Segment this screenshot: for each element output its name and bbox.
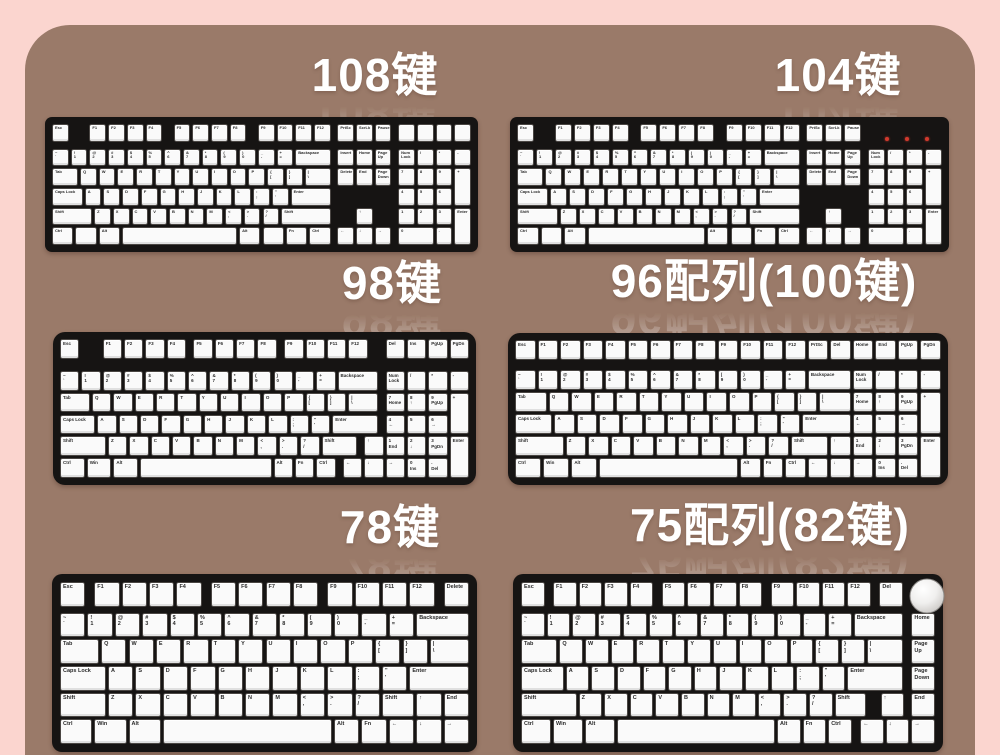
key-home: Home [825, 149, 842, 167]
key-label: V [151, 209, 166, 215]
key-label: ) 0 [275, 372, 292, 384]
key-f7: F7 [211, 124, 228, 142]
key-label: Page Down [376, 169, 391, 180]
key-label: ← [807, 228, 822, 234]
key-tab: Tab [521, 639, 557, 664]
key-caps-lock: Caps Lock [60, 415, 95, 435]
key-label: F5 [194, 340, 211, 346]
key-label: Z [561, 209, 576, 215]
key-label: I [212, 169, 227, 175]
keyboard-96-layout-100-key: EscF1F2F3F4F5F6F7F8F9F10F11F12PrtScDelHo… [508, 333, 948, 485]
key-label: B [657, 437, 676, 443]
key-label: PrtSc [807, 125, 822, 131]
key-tab: Tab [515, 392, 547, 412]
key-label: Backspace [296, 150, 329, 156]
key-label: Alt [240, 228, 259, 234]
key-label: ← [338, 228, 353, 234]
key-label: F10 [746, 125, 761, 131]
key-label: F11 [328, 340, 345, 346]
key-s: S [119, 415, 138, 435]
key-7: 7 [868, 168, 885, 186]
key-label [600, 459, 737, 460]
key-j: J [225, 415, 244, 435]
key-label: F6 [239, 583, 262, 591]
key-label: Enter [848, 667, 902, 675]
key-label: F9 [727, 125, 742, 131]
key-label: Ctrl [310, 228, 329, 234]
key-label: G [161, 189, 176, 195]
key-y: Y [199, 393, 218, 413]
key-label: O [231, 169, 246, 175]
key-3: # 3 [598, 613, 622, 638]
key-label: | \ [820, 393, 850, 405]
key-label: ! 1 [82, 372, 99, 384]
key-f9: F9 [771, 582, 795, 607]
key-b: B [656, 436, 677, 456]
key-label [732, 228, 752, 229]
key-↓: 2 ↓ [407, 436, 426, 456]
key-c: C [151, 436, 170, 456]
key-1: ! 1 [87, 613, 112, 638]
key--: + [454, 168, 471, 205]
key-label: ! 1 [539, 371, 558, 383]
key-label: > . [280, 437, 297, 449]
key-f3: F3 [604, 582, 628, 607]
key-label: E [157, 640, 180, 648]
key-label: F7 [267, 583, 290, 591]
key-del: . Del [428, 458, 447, 478]
key-1: ! 1 [81, 371, 100, 391]
key-label: F [608, 189, 623, 195]
key-label: A [555, 415, 574, 421]
key-h: H [667, 414, 688, 434]
key-backspace: Backspace [338, 371, 379, 391]
key-home: Home [853, 340, 874, 360]
key-fn: Fn [361, 719, 386, 744]
key--: _ - [258, 149, 275, 167]
key-label: Esc [61, 340, 78, 346]
key-i: I [293, 639, 318, 664]
key-g: G [218, 666, 243, 691]
key-label: ↑ [357, 209, 372, 215]
key-label: _ - [362, 614, 385, 628]
key-shift: Shift [517, 208, 558, 226]
key-pgup: PgUp [898, 340, 919, 360]
key-label: R [603, 169, 618, 175]
key-←: ← [808, 458, 829, 478]
key-label: / [408, 372, 425, 378]
key-alt: Alt [707, 227, 729, 245]
key-label: ) 0 [240, 150, 255, 161]
key--: ~ ` [515, 370, 536, 390]
key-label: 7 Home [387, 394, 404, 406]
key-label: M [207, 209, 222, 215]
key-shift: Shift [515, 436, 564, 456]
key-7: 7 [398, 168, 415, 186]
key-label: > . [747, 437, 766, 449]
key-label: PrtSc [338, 125, 353, 131]
key-f6: F6 [192, 124, 209, 142]
key-i: I [241, 393, 260, 413]
key-label: → [376, 228, 391, 234]
key--: < , [758, 693, 782, 718]
key-o: O [230, 168, 247, 186]
key-label: W [565, 169, 580, 175]
key-end: End [911, 693, 935, 718]
key-label: J [720, 667, 742, 675]
key-label: Ctrl [522, 720, 550, 728]
key-label: - [451, 372, 468, 378]
key-label: 5 [408, 416, 425, 422]
key-↓: 2 ↓ [875, 436, 896, 456]
key-label: Tab [518, 169, 542, 175]
key-enter: Enter [291, 188, 331, 206]
key-f6: F6 [687, 582, 711, 607]
key-p: P [248, 168, 265, 186]
key-m: M [674, 208, 691, 226]
key-label: PgDn [451, 340, 468, 346]
key-label: + = [829, 614, 851, 628]
key--: + [925, 168, 942, 205]
key-label: F10 [797, 583, 819, 591]
key-alt: Alt [334, 719, 359, 744]
key-u: U [713, 639, 737, 664]
key--: * [428, 371, 447, 391]
key-label: L [328, 667, 351, 675]
key-f: F [141, 188, 158, 206]
key-j: J [664, 188, 681, 206]
key-label: # 3 [125, 372, 142, 384]
key-4: $ 4 [127, 149, 144, 167]
key-label [589, 228, 704, 229]
key-label: F1 [556, 125, 571, 131]
key-prtsc: PrtSc [337, 124, 354, 142]
key-label: M [733, 694, 755, 702]
key-label: E [118, 169, 133, 175]
key-label: ↓ [831, 459, 850, 465]
key-label: I [242, 394, 259, 400]
key-label: $ 4 [171, 614, 194, 628]
key-label: T [178, 394, 195, 400]
key-r: R [602, 168, 619, 186]
key-label: Alt [335, 720, 358, 728]
key-n: N [655, 208, 672, 226]
key-label: * [437, 150, 452, 156]
key-label: R [184, 640, 207, 648]
key-f10: F10 [277, 124, 294, 142]
key-label: Caps Lock [61, 416, 94, 422]
key-8: * 8 [726, 613, 750, 638]
key-label: F6 [193, 125, 208, 131]
key-end: 1 End [853, 436, 874, 456]
key-label: F12 [784, 125, 799, 131]
key-f9: F9 [284, 339, 303, 359]
key-9: ( 9 [718, 370, 739, 390]
key-enter: Enter [409, 666, 469, 691]
key-label: Alt [114, 459, 137, 465]
key-label: _ - [296, 372, 313, 384]
key-label: 3 PgDn [429, 437, 446, 449]
key-label: A [98, 416, 115, 422]
key-lock: Num Lock [398, 149, 415, 167]
key--: + = [277, 149, 294, 167]
key-y: Y [640, 168, 657, 186]
key-label: 9 [437, 169, 452, 175]
key-label: Ctrl [786, 459, 805, 465]
key--: ? / [731, 208, 748, 226]
key-del: Del [879, 582, 903, 607]
key--: _ - [361, 613, 386, 638]
key-label: H [668, 415, 687, 421]
key-l: L [234, 188, 251, 206]
key-label: Ctrl [61, 720, 91, 728]
key-fn: Fn [286, 227, 307, 245]
key-label: * [907, 150, 922, 156]
key-blank [163, 719, 332, 744]
key--: " ' [822, 666, 846, 691]
key-9: ( 9 [220, 149, 237, 167]
key-label: W [572, 393, 591, 399]
key-end: End [356, 168, 373, 186]
key-label: C [152, 437, 169, 443]
key--: " ' [740, 188, 757, 206]
key-5: 5 [887, 188, 904, 206]
key-label: Shift [282, 209, 329, 215]
key-f1: F1 [555, 124, 572, 142]
key-label: F3 [150, 583, 173, 591]
key-label: F [162, 416, 179, 422]
key-k: K [683, 188, 700, 206]
key-fn: Fn [803, 719, 827, 744]
keyboard-104-key: EscF1F2F3F4F5F6F7F8F9F10F11F12PrtScScrLk… [510, 117, 949, 252]
indicator-led [885, 137, 889, 141]
key-del: . Del [898, 458, 919, 478]
key--: > . [783, 693, 807, 718]
key-9: ( 9 [252, 371, 271, 391]
key-label: ! 1 [537, 150, 552, 161]
key-label: ^ 6 [165, 150, 180, 161]
key-shift: Shift [52, 208, 92, 226]
key-label: T [663, 640, 685, 648]
key-label: Shift [516, 437, 563, 443]
key--: { [ [815, 639, 839, 664]
key-label: Y [662, 393, 681, 399]
key-u: U [684, 392, 705, 412]
key-label: P [285, 394, 302, 400]
key--: _ - [726, 149, 743, 167]
section-title-96-layout: 96配列(100键) 96配列(100键) [611, 258, 918, 341]
key-fn: Fn [763, 458, 784, 478]
key-label: F10 [356, 583, 379, 591]
key-2: 2 [887, 208, 904, 226]
key--: | \ [348, 393, 378, 413]
key-f: F [161, 415, 180, 435]
key-f3: F3 [593, 124, 610, 142]
key-label: F12 [786, 341, 805, 347]
key-2: @ 2 [115, 613, 140, 638]
key-label: I [740, 640, 762, 648]
key-label: H [246, 667, 269, 675]
key-label: ~ ` [518, 150, 533, 161]
key-label: D [589, 189, 604, 195]
key-label: Tab [53, 169, 77, 175]
key-label: 8 [888, 169, 903, 175]
key-label: F5 [212, 583, 235, 591]
key-l: L [327, 666, 352, 691]
key-label: F [623, 415, 642, 421]
key-f1: F1 [538, 340, 559, 360]
key-alt: Alt [99, 227, 120, 245]
key-f4: F4 [605, 340, 626, 360]
key-label: F4 [613, 125, 628, 131]
key-8: * 8 [231, 371, 250, 391]
key-c: C [163, 693, 188, 718]
key-↑: ↑ [416, 693, 441, 718]
key-c: C [611, 436, 632, 456]
key-f10: F10 [745, 124, 762, 142]
key-label: ← [344, 459, 361, 465]
key-label: Esc [61, 583, 84, 591]
key-label: B [682, 694, 704, 702]
key-n: N [678, 436, 699, 456]
key--: { [ [735, 168, 752, 186]
key-label: End [445, 694, 468, 702]
key-label: 2 [418, 209, 433, 215]
key-x: X [135, 693, 160, 718]
key-4: $ 4 [605, 370, 626, 390]
key-home: Home [911, 613, 935, 638]
key--: { [ [375, 639, 400, 664]
key-label: Alt [741, 459, 760, 465]
key-label: F2 [109, 125, 124, 131]
key-t: T [211, 639, 236, 664]
key-label: ↑ [831, 437, 850, 443]
key-label: PgDn [921, 341, 940, 347]
key-←: 4 ← [853, 414, 874, 434]
key-label: 5 [418, 189, 433, 195]
key-label: & 7 [701, 614, 723, 628]
key-label: → [387, 459, 404, 465]
key-label: 6 [437, 189, 452, 195]
key-i: I [678, 168, 695, 186]
key--: | \ [305, 168, 331, 186]
key--: { [ [774, 392, 795, 412]
key-i: I [739, 639, 763, 664]
key-tab: Tab [60, 639, 99, 664]
key-enter: Enter [920, 436, 941, 478]
key-tab: Tab [52, 168, 78, 186]
key-label: Fn [764, 459, 783, 465]
key-label: ~ ` [53, 150, 68, 161]
key-caps-lock: Caps Lock [515, 414, 552, 434]
key-label: Tab [61, 394, 89, 400]
key--: * [898, 370, 919, 390]
key-label: | \ [868, 640, 902, 654]
key-label: Home [912, 614, 934, 622]
key-label: Enter [921, 437, 940, 443]
key-9: ( 9 [688, 149, 705, 167]
key-f: F [622, 414, 643, 434]
key-label: H [695, 667, 717, 675]
key-label: Caps Lock [516, 415, 551, 421]
key-f8: F8 [293, 582, 318, 607]
key-f11: F11 [382, 582, 407, 607]
key-2: @ 2 [572, 613, 596, 638]
key-enter: Enter [332, 415, 378, 435]
key-f10: F10 [306, 339, 325, 359]
key-label: ^ 6 [225, 614, 248, 628]
key-5: 5 [417, 188, 434, 206]
key-alt: Alt [239, 227, 260, 245]
key-6: 6 [906, 188, 923, 206]
key-label: ← [809, 459, 828, 465]
key-f7: F7 [673, 340, 694, 360]
key-label: Esc [516, 341, 535, 347]
key-label: D [600, 415, 619, 421]
key-label: F10 [307, 340, 324, 346]
key-label: S [592, 667, 614, 675]
key-c: C [598, 208, 615, 226]
key-shift: Shift [60, 436, 106, 456]
key-label: F8 [696, 341, 715, 347]
key--: < , [723, 436, 744, 456]
key-label: Shift [53, 209, 91, 215]
key-label: U [221, 394, 238, 400]
key-label: ^ 6 [632, 150, 647, 161]
key-v: V [150, 208, 167, 226]
key-shift: Shift [835, 693, 866, 718]
key-label: End [912, 694, 934, 702]
key-label: # 3 [584, 371, 603, 383]
key-label: J [226, 416, 243, 422]
key-label: O [698, 169, 713, 175]
key-label: 1 [399, 209, 414, 215]
key-ctrl: Ctrl [309, 227, 330, 245]
key-label: F12 [349, 340, 366, 346]
key-label: Caps Lock [61, 667, 105, 675]
key-f8: F8 [697, 124, 714, 142]
key-label: Del [387, 340, 404, 346]
key-label: Enter [803, 415, 850, 421]
key-0: 0 [398, 227, 433, 245]
key-←: 4 ← [386, 415, 405, 435]
key-f: F [607, 188, 624, 206]
key-label: ^ 6 [189, 372, 206, 384]
key-tab: Tab [60, 393, 90, 413]
indicator-led [925, 137, 929, 141]
key-delete: Delete [806, 168, 823, 186]
key-label: Delete [807, 169, 822, 175]
key-label: F4 [631, 583, 653, 591]
key-label: Backspace [417, 614, 468, 622]
key-n: N [215, 436, 234, 456]
key-label: Shift [61, 437, 105, 443]
key-label: _ - [764, 371, 783, 383]
key-t: T [621, 168, 638, 186]
key-e: E [156, 639, 181, 664]
key-q: Q [549, 392, 570, 412]
key-up: Page Up [911, 639, 935, 664]
key-label: ~ ` [61, 614, 84, 628]
key-d: D [588, 188, 605, 206]
key-p: P [752, 392, 773, 412]
key-f7: F7 [266, 582, 291, 607]
key-label: → [854, 459, 873, 465]
key-label: Backspace [765, 150, 799, 156]
key--: > . [244, 208, 261, 226]
key-blank [617, 719, 775, 744]
key-9: 9 [906, 168, 923, 186]
